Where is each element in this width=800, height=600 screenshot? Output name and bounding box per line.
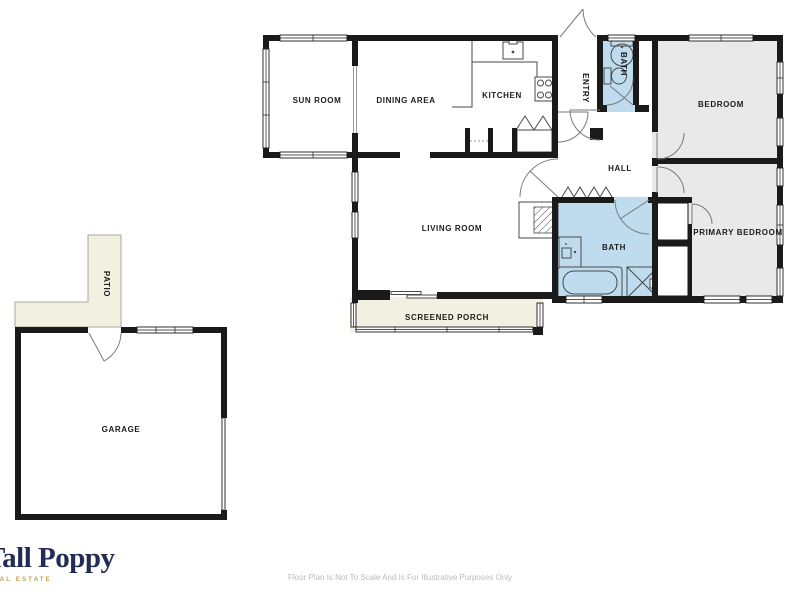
- hall-living-door: [520, 159, 558, 197]
- room-label-sun-room: SUN ROOM: [293, 96, 342, 105]
- room-label-bedroom: BEDROOM: [698, 100, 744, 109]
- kitchen-cabinet: [517, 130, 552, 152]
- room-label-kitchen: KITCHEN: [482, 91, 522, 100]
- floor-plan: SUN ROOM DINING AREA KITCHEN ENTRY BATH …: [0, 0, 800, 600]
- room-label-hall: HALL: [608, 164, 632, 173]
- front-door: [560, 9, 596, 37]
- stove: [535, 77, 553, 101]
- sunroom-opening: [354, 66, 357, 133]
- garage-door: [221, 418, 226, 510]
- room-label-bath-upper: BATH: [619, 52, 628, 76]
- disclaimer-text: Floor Plan Is Not To Scale And Is For Il…: [0, 573, 800, 582]
- room-label-patio: PATIO: [102, 271, 111, 297]
- room-label-primary-bedroom: PRIMARY BEDROOM: [693, 228, 782, 237]
- floor-plan-page: SUN ROOM DINING AREA KITCHEN ENTRY BATH …: [0, 0, 800, 600]
- room-label-living-room: LIVING ROOM: [422, 224, 482, 233]
- pantry-bifold-doors: [516, 116, 552, 130]
- primary-closets: [656, 203, 688, 296]
- tall-poppy-logo: Tall Poppy: [0, 542, 115, 575]
- hall-closet-bifold-doors: [562, 187, 612, 197]
- garage-entry-door: [89, 333, 121, 361]
- room-label-screened-porch: SCREENED PORCH: [405, 313, 489, 322]
- kitchen-sink: [503, 40, 523, 59]
- room-label-entry: ENTRY: [581, 73, 590, 103]
- room-label-garage: GARAGE: [102, 425, 141, 434]
- room-label-dining-area: DINING AREA: [376, 96, 435, 105]
- room-label-bath-lower: BATH: [602, 243, 626, 252]
